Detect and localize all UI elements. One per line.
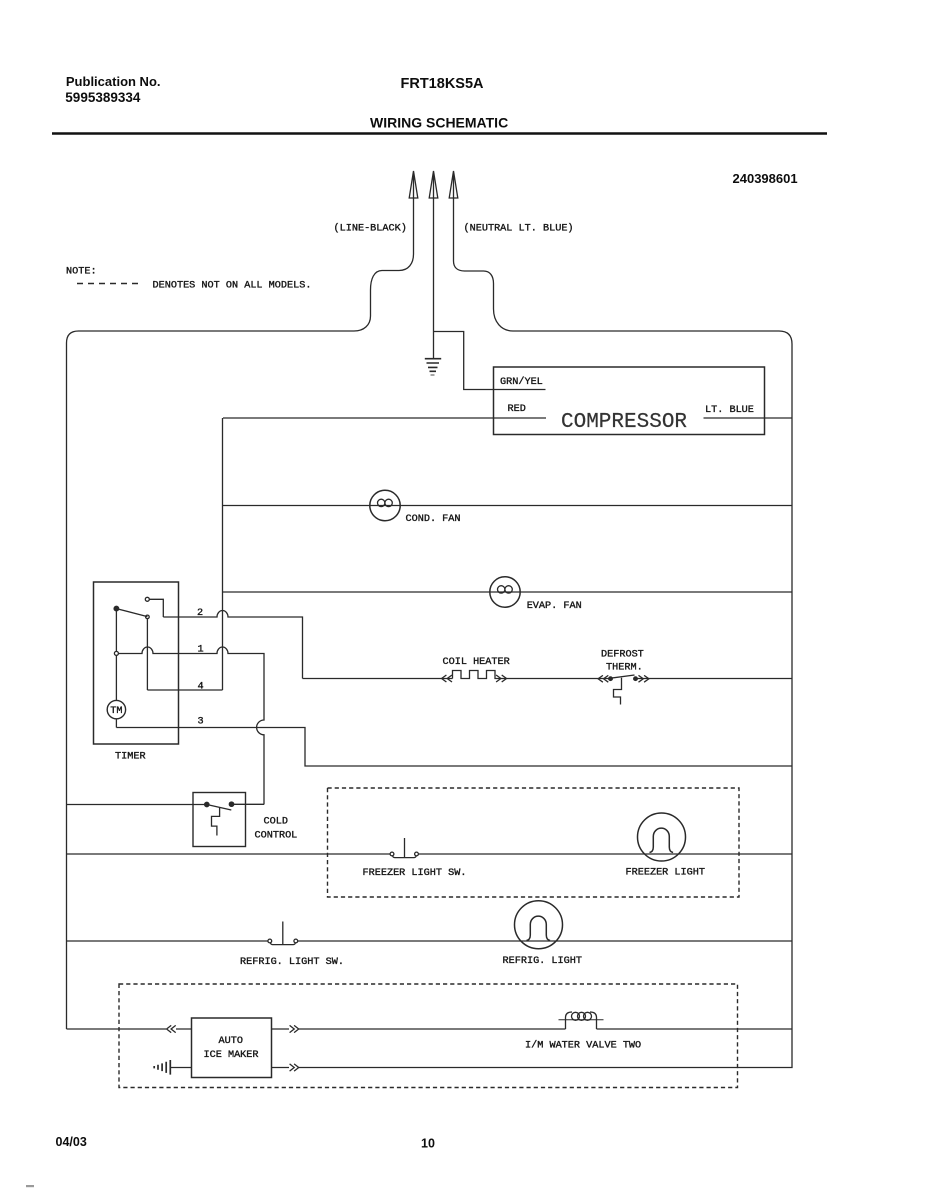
svg-text:WIRING SCHEMATIC: WIRING SCHEMATIC — [370, 115, 508, 131]
svg-text:(NEUTRAL LT. BLUE): (NEUTRAL LT. BLUE) — [464, 223, 574, 235]
svg-text:240398601: 240398601 — [733, 171, 798, 186]
svg-text:RED: RED — [508, 404, 526, 415]
svg-text:TIMER: TIMER — [115, 752, 146, 763]
svg-text:Publication No.: Publication No. — [66, 74, 161, 89]
svg-text:2: 2 — [197, 608, 203, 619]
svg-text:REFRIG. LIGHT: REFRIG. LIGHT — [503, 956, 582, 967]
svg-text:FREEZER LIGHT: FREEZER LIGHT — [626, 868, 705, 879]
svg-text:5995389334: 5995389334 — [65, 90, 141, 105]
svg-text:GRN/YEL: GRN/YEL — [500, 376, 543, 388]
svg-text:DEFROST: DEFROST — [601, 650, 644, 661]
svg-text:CONTROL: CONTROL — [255, 831, 298, 842]
svg-text:THERM.: THERM. — [606, 663, 643, 674]
svg-text:COND. FAN: COND. FAN — [406, 514, 461, 525]
svg-text:TM: TM — [110, 706, 122, 717]
svg-text:COIL HEATER: COIL HEATER — [443, 657, 510, 668]
svg-text:I/M WATER VALVE TWO: I/M WATER VALVE TWO — [525, 1040, 641, 1052]
svg-text:EVAP. FAN: EVAP. FAN — [527, 601, 582, 612]
svg-text:04/03: 04/03 — [56, 1135, 87, 1149]
svg-text:3: 3 — [198, 717, 204, 728]
svg-text:(LINE-BLACK): (LINE-BLACK) — [334, 223, 407, 235]
svg-text:AUTO: AUTO — [219, 1036, 243, 1047]
svg-text:COMPRESSOR: COMPRESSOR — [561, 411, 687, 434]
svg-text:1: 1 — [198, 645, 204, 656]
svg-text:DENOTES NOT ON ALL MODELS.: DENOTES NOT ON ALL MODELS. — [153, 281, 312, 292]
svg-text:ICE MAKER: ICE MAKER — [204, 1050, 259, 1061]
svg-text:COLD: COLD — [264, 817, 288, 828]
svg-text:REFRIG. LIGHT SW.: REFRIG. LIGHT SW. — [240, 957, 344, 968]
svg-text:FREEZER LIGHT SW.: FREEZER LIGHT SW. — [363, 868, 467, 879]
svg-text:LT. BLUE: LT. BLUE — [705, 405, 754, 416]
svg-text:FRT18KS5A: FRT18KS5A — [401, 76, 485, 92]
svg-text:4: 4 — [198, 682, 204, 693]
svg-text:10: 10 — [421, 1137, 435, 1151]
svg-text:NOTE:: NOTE: — [66, 267, 97, 278]
